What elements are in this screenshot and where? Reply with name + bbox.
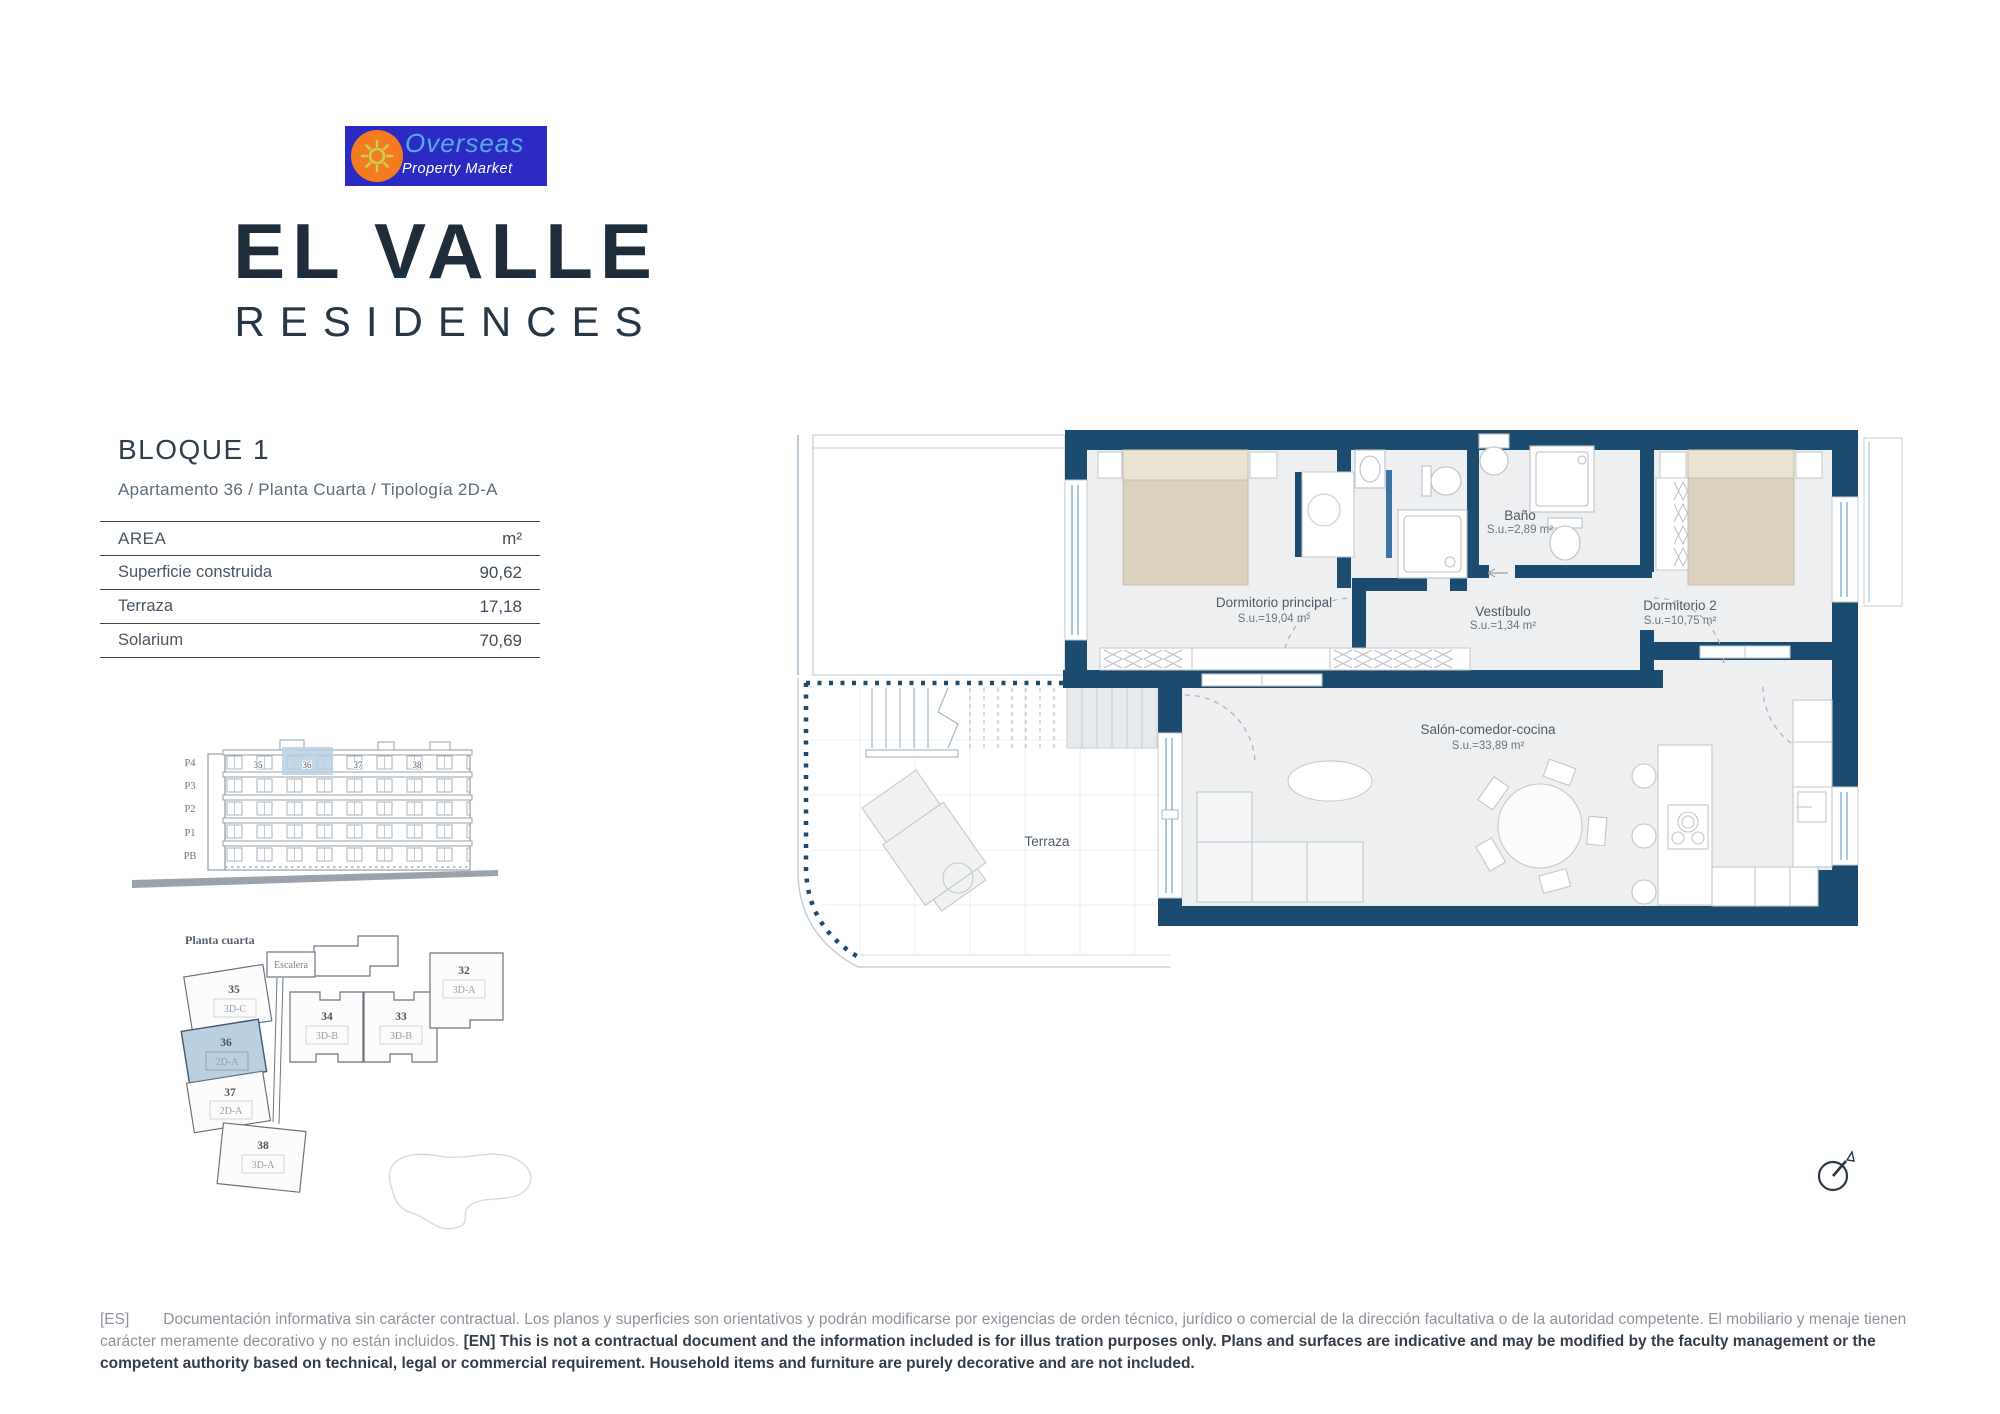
apartment-floor-plan: Dormitorio principal S.u.=19,04 m² Baño …: [610, 330, 1910, 1010]
table-row: Terraza 17,18: [100, 589, 540, 623]
room-label-vestibulo: Vestíbulo: [1475, 604, 1531, 619]
row-label: Superficie construida: [118, 563, 272, 582]
stair-core-label: Escalera: [274, 960, 308, 971]
row-label: Solarium: [118, 631, 183, 650]
row-value: 90,62: [479, 563, 522, 583]
room-label-dormitorio2: Dormitorio 2: [1643, 598, 1717, 613]
unit-number-35: 35: [254, 760, 264, 770]
key-num-36: 36: [220, 1037, 232, 1049]
room-area-bano: S.u.=2,89 m²: [1487, 524, 1553, 536]
unit-number-38: 38: [413, 760, 423, 770]
pool-outline: [389, 1154, 531, 1229]
apartment-subtitle: Apartamento 36 / Planta Cuarta / Tipolog…: [118, 480, 498, 500]
key-num-33: 33: [395, 1011, 407, 1023]
floor-label-pb: PB: [184, 851, 197, 862]
room-label-bano: Baño: [1504, 508, 1536, 523]
floor-label-p2: P2: [184, 804, 195, 815]
room-label-dormitorio-principal: Dormitorio principal: [1216, 595, 1332, 610]
sun-lounger: [859, 768, 994, 917]
key-num-32: 32: [458, 965, 470, 977]
key-num-35: 35: [228, 984, 240, 996]
agency-logo: Overseas Property Market: [345, 126, 547, 186]
area-header-label: AREA: [118, 529, 166, 549]
legal-disclaimer: [ES]Documentación informativa sin caráct…: [100, 1309, 1912, 1375]
building-elevation-drawing: P4 P3 P2 P1 PB 35 36 37 38: [130, 728, 520, 908]
key-type-38: 3D-A: [252, 1160, 276, 1171]
key-num-34: 34: [321, 1011, 333, 1023]
room-label-salon: Salón-comedor-cocina: [1420, 722, 1556, 737]
logo-line1: Overseas: [405, 128, 524, 159]
floor-label-p3: P3: [184, 781, 195, 792]
development-title: EL VALLE: [150, 206, 742, 297]
unit-number-36: 36: [303, 760, 313, 770]
table-row: Solarium 70,69: [100, 623, 540, 658]
key-type-37: 2D-A: [220, 1106, 244, 1117]
floor-key-plan: Planta cuarta Escalera 35 3D-C 36 2D-A 3…: [140, 930, 570, 1235]
terrace-stairs: [866, 686, 1157, 757]
row-label: Terraza: [118, 597, 173, 616]
key-num-37: 37: [224, 1087, 236, 1099]
unit-number-37: 37: [354, 760, 364, 770]
room-area-dormitorio2: S.u.=10,75 m²: [1644, 615, 1717, 627]
area-table: AREA m² Superficie construida 90,62 Terr…: [100, 521, 540, 658]
north-arrow-icon: [1800, 1140, 1880, 1210]
coffee-table: [1288, 761, 1372, 801]
key-type-34: 3D-B: [316, 1031, 339, 1042]
area-table-header: AREA m²: [100, 521, 540, 555]
key-plan-title: Planta cuarta: [185, 933, 255, 947]
row-value: 17,18: [479, 597, 522, 617]
brochure-page: Overseas Property Market EL VALLE RESIDE…: [0, 0, 2000, 1414]
room-area-dormitorio-principal: S.u.=19,04 m²: [1238, 613, 1311, 625]
room-area-salon: S.u.=33,89 m²: [1452, 740, 1525, 752]
room-label-terraza: Terraza: [1024, 834, 1070, 849]
row-value: 70,69: [479, 631, 522, 651]
key-type-33: 3D-B: [390, 1031, 413, 1042]
disclaimer-es-tag: [ES]: [100, 1311, 163, 1328]
tv-unit: [1295, 472, 1354, 557]
table-row: Superficie construida 90,62: [100, 555, 540, 589]
area-header-unit: m²: [502, 529, 522, 549]
key-type-35: 3D-C: [224, 1004, 247, 1015]
key-type-32: 3D-A: [453, 985, 477, 996]
disclaimer-en-tag: [EN]: [464, 1333, 496, 1350]
key-num-38: 38: [257, 1140, 269, 1152]
block-title: BLOQUE 1: [118, 434, 270, 466]
room-area-vestibulo: S.u.=1,34 m²: [1470, 620, 1536, 632]
key-type-36: 2D-A: [216, 1057, 240, 1068]
floor-label-p1: P1: [184, 828, 195, 839]
logo-line2: Property Market: [402, 161, 513, 177]
floor-label-p4: P4: [184, 758, 196, 769]
